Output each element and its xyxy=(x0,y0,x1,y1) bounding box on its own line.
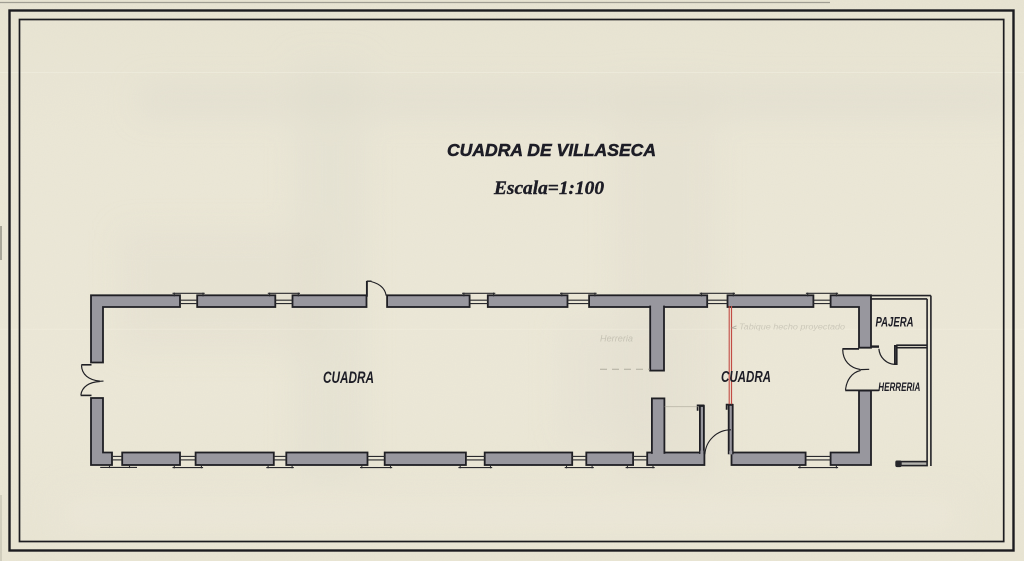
svg-text:Escala=1:100: Escala=1:100 xyxy=(493,178,605,199)
svg-text:CUADRA: CUADRA xyxy=(721,369,771,386)
svg-text:Tabique hecho proyectado: Tabique hecho proyectado xyxy=(739,322,845,332)
svg-text:CUADRA: CUADRA xyxy=(323,369,374,387)
svg-text:Herreria: Herreria xyxy=(600,334,633,345)
svg-text:HERRERIA: HERRERIA xyxy=(878,380,920,394)
svg-text:CUADRA DE VILLASECA: CUADRA DE VILLASECA xyxy=(447,140,656,160)
svg-text:PAJERA: PAJERA xyxy=(876,314,914,329)
